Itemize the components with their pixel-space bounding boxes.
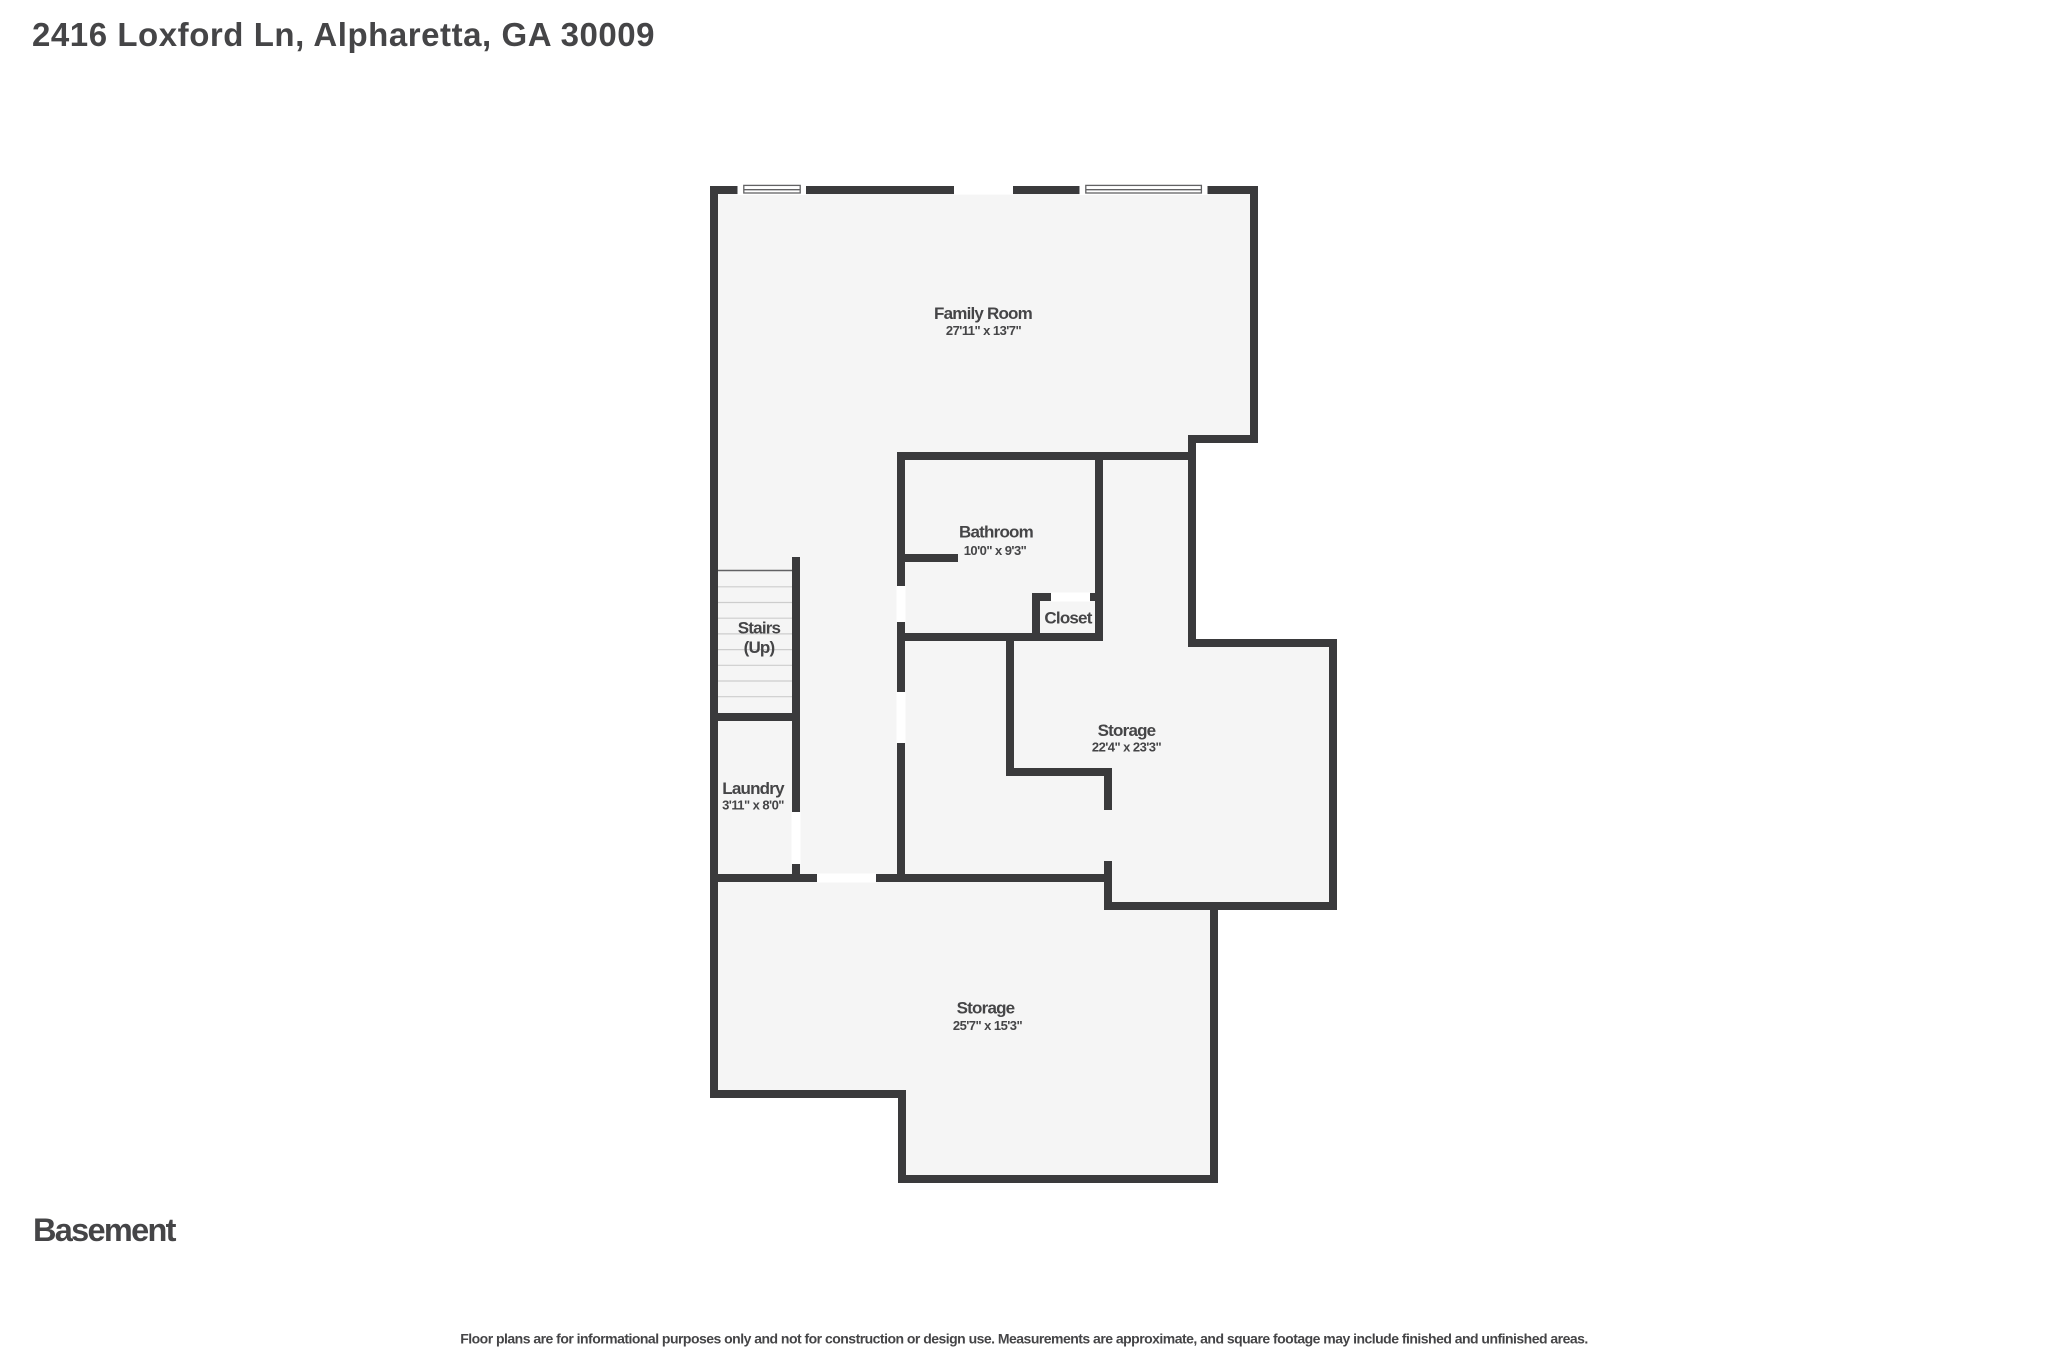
svg-text:Closet: Closet — [1044, 609, 1092, 628]
svg-text:Stairs: Stairs — [738, 619, 781, 638]
svg-text:Basement: Basement — [33, 1212, 177, 1248]
svg-text:22'4" x 23'3": 22'4" x 23'3" — [1092, 740, 1162, 755]
svg-text:27'11" x 13'7": 27'11" x 13'7" — [946, 323, 1022, 338]
svg-text:Storage: Storage — [1098, 721, 1156, 740]
svg-text:Laundry: Laundry — [722, 779, 785, 798]
svg-text:(Up): (Up) — [744, 638, 775, 657]
svg-text:Storage: Storage — [957, 999, 1015, 1018]
svg-text:Floor plans are for informatio: Floor plans are for informational purpos… — [460, 1331, 1588, 1347]
svg-text:2416 Loxford Ln, Alpharetta, G: 2416 Loxford Ln, Alpharetta, GA 30009 — [32, 16, 655, 53]
svg-text:3'11" x 8'0": 3'11" x 8'0" — [722, 798, 784, 813]
svg-text:Bathroom: Bathroom — [959, 523, 1034, 542]
svg-text:10'0" x 9'3": 10'0" x 9'3" — [964, 543, 1027, 558]
svg-text:Family Room: Family Room — [934, 304, 1033, 323]
svg-text:25'7" x 15'3": 25'7" x 15'3" — [953, 1018, 1023, 1033]
